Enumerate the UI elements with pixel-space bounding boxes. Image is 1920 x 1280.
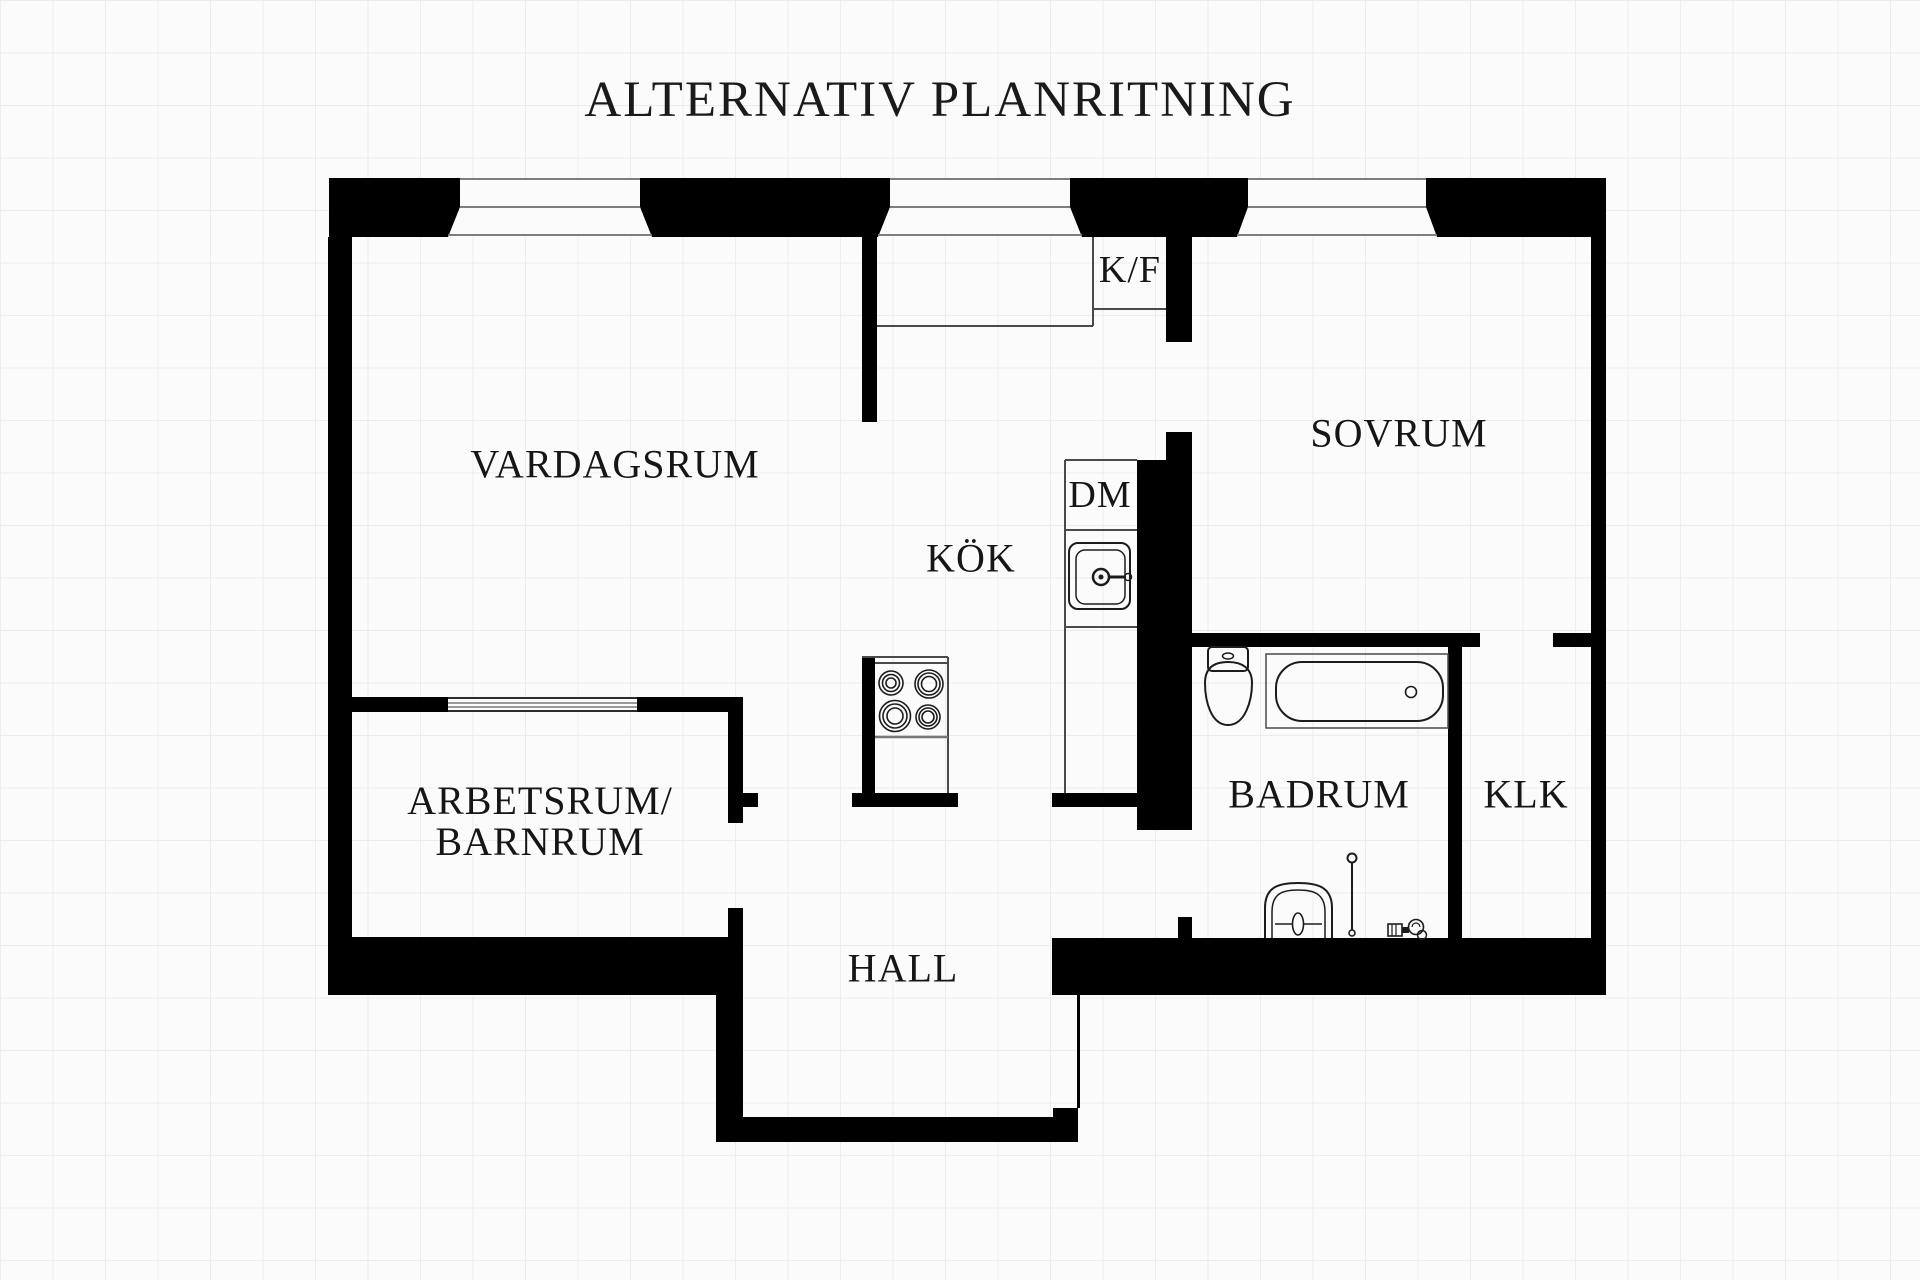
workroom-door-jamb-nib — [743, 793, 758, 807]
wall-exterior-bottom-left — [328, 937, 743, 995]
window-3-sill-inner — [1237, 234, 1437, 236]
wall-bathroom-closet — [1448, 643, 1462, 938]
wall-hall-bottom — [716, 1117, 1078, 1142]
wall-bedroom-bathroom — [1192, 633, 1480, 647]
wall-livingroom-kitchen — [862, 235, 877, 422]
room-label-vardagsrum: VARDAGSRUM — [470, 441, 759, 488]
wall-kitchen-bedroom-upper — [1166, 235, 1192, 342]
appliance-label-fridge-freezer: K/F — [1099, 248, 1161, 292]
room-label-arbetsrum: ARBETSRUM/ BARNRUM — [407, 780, 673, 862]
room-label-arbetsrum-line2: BARNRUM — [407, 821, 673, 862]
wall-kitchen-bedroom-jamb — [1166, 432, 1192, 460]
entrance-door-jamb — [1053, 1108, 1078, 1142]
room-label-badrum: BADRUM — [1228, 771, 1410, 818]
toilet — [1205, 647, 1252, 725]
window-1-sill-outer — [460, 178, 640, 180]
entrance-opening-line — [1077, 995, 1080, 1108]
wall-bedroom-closet-stub — [1553, 633, 1591, 647]
room-label-klk: KLK — [1483, 771, 1568, 818]
wall-livingroom-workroom-left — [352, 697, 448, 712]
wall-workroom-hall-lower — [728, 908, 743, 938]
wall-workroom-hall-upper — [728, 712, 743, 823]
floor-plan-canvas: ALTERNATIV PLANRITNING — [0, 0, 1920, 1280]
wall-kitchen-hall-right — [1052, 793, 1137, 807]
wall-kitchen-hall-left — [852, 793, 958, 807]
service-shaft — [1137, 460, 1192, 830]
window-2-sill-mid — [890, 206, 1070, 208]
room-label-arbetsrum-line1: ARBETSRUM/ — [407, 780, 673, 821]
interior-window — [448, 697, 637, 712]
window-3-sill-mid — [1248, 206, 1426, 208]
stove-side-wall — [862, 657, 875, 793]
room-label-sovrum: SOVRUM — [1310, 410, 1487, 457]
room-label-kok: KÖK — [926, 535, 1016, 582]
wall-exterior-bottom-right — [1052, 938, 1606, 995]
washbasin — [1265, 883, 1332, 938]
bath-faucet — [1388, 920, 1427, 940]
wall-exterior-left — [328, 237, 352, 995]
interior-window-glass-line — [448, 702, 637, 704]
interior-window-glass-line — [448, 706, 637, 708]
page-title: ALTERNATIV PLANRITNING — [584, 71, 1295, 129]
appliance-label-dishwasher: DM — [1068, 473, 1131, 517]
kitchen-sink — [1069, 543, 1132, 609]
wall-exterior-right — [1591, 237, 1606, 995]
window-1-sill-inner — [448, 234, 652, 236]
bathtub — [1266, 654, 1448, 728]
window-2-sill-inner — [878, 234, 1082, 236]
wall-livingroom-workroom-right — [637, 697, 743, 712]
window-2-sill-outer — [890, 178, 1070, 180]
window-1-sill-mid — [460, 206, 640, 208]
shower-rail — [1348, 854, 1357, 937]
window-3-sill-outer — [1248, 178, 1426, 180]
bathroom-door-jamb — [1178, 917, 1192, 938]
stove-burners — [879, 670, 943, 732]
room-label-hall: HALL — [848, 945, 959, 992]
